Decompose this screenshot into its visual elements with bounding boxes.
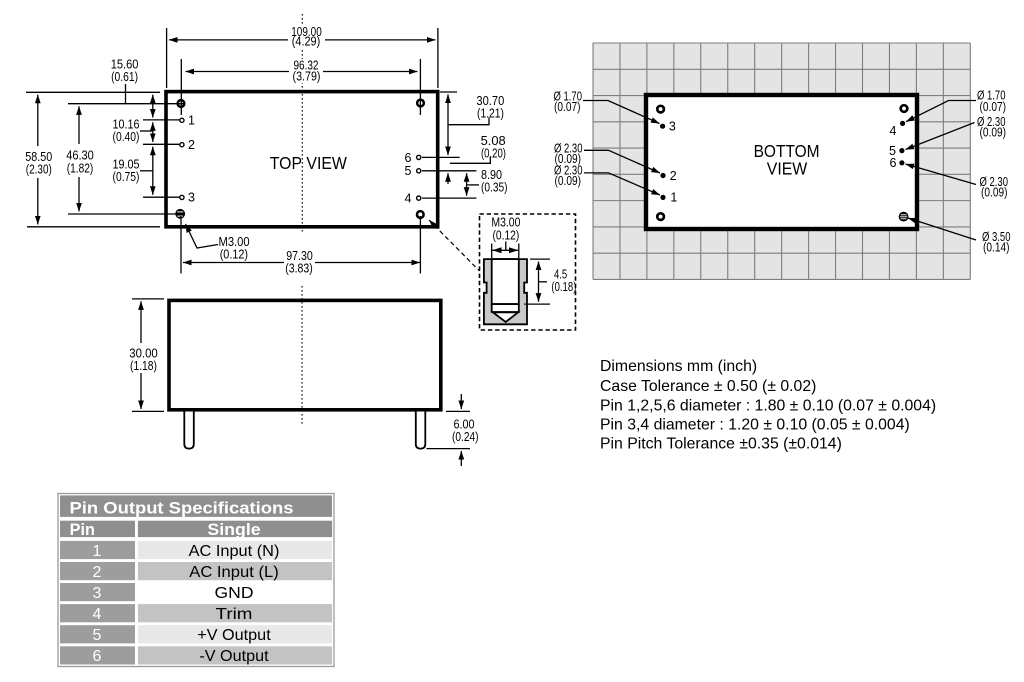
svg-text:Pin Pitch Tolerance ±0.35 (±0.: Pin Pitch Tolerance ±0.35 (±0.014) xyxy=(600,435,842,452)
svg-text:(0.14): (0.14) xyxy=(983,241,1010,255)
svg-text:5: 5 xyxy=(405,164,412,178)
svg-text:Pin 3,4 diameter : 1.20 ± 0.10: Pin 3,4 diameter : 1.20 ± 0.10 (0.05 ± 0… xyxy=(600,417,910,434)
svg-text:3: 3 xyxy=(669,120,676,134)
svg-text:1: 1 xyxy=(93,543,102,560)
svg-text:Case Tolerance ± 0.50 (± 0.02): Case Tolerance ± 0.50 (± 0.02) xyxy=(600,378,816,395)
svg-text:AC Input (L): AC Input (L) xyxy=(189,564,279,581)
svg-text:4: 4 xyxy=(890,124,897,138)
svg-text:Pin 1,2,5,6 diameter : 1.80 ±: Pin 1,2,5,6 diameter : 1.80 ± 0.10 (0.07… xyxy=(600,398,936,415)
svg-text:(0.35): (0.35) xyxy=(481,180,508,195)
svg-text:+V Output: +V Output xyxy=(197,627,271,644)
svg-text:(0.09): (0.09) xyxy=(555,174,582,188)
svg-text:Dimensions mm (inch): Dimensions mm (inch) xyxy=(600,358,757,375)
svg-text:3: 3 xyxy=(188,191,195,205)
svg-text:(3.83): (3.83) xyxy=(285,261,313,276)
svg-text:Pin Output Specifications: Pin Output Specifications xyxy=(70,500,294,518)
svg-text:(3.79): (3.79) xyxy=(293,68,321,83)
svg-text:VIEW: VIEW xyxy=(306,153,347,173)
svg-text:6: 6 xyxy=(890,156,897,170)
svg-text:2: 2 xyxy=(188,138,195,152)
svg-text:(0.75): (0.75) xyxy=(113,169,140,184)
svg-text:(0.40): (0.40) xyxy=(113,129,140,144)
svg-text:(0.09): (0.09) xyxy=(980,126,1007,140)
svg-text:(4.29): (4.29) xyxy=(292,34,321,49)
svg-text:-V Output: -V Output xyxy=(199,648,269,665)
svg-text:4: 4 xyxy=(405,191,412,205)
svg-text:1: 1 xyxy=(670,191,677,205)
svg-text:(0.18): (0.18) xyxy=(551,279,576,294)
svg-text:(1.21): (1.21) xyxy=(477,105,504,120)
svg-text:GND: GND xyxy=(215,585,254,602)
svg-text:(0.12): (0.12) xyxy=(220,247,248,262)
svg-text:3: 3 xyxy=(93,585,102,602)
svg-text:4: 4 xyxy=(93,606,102,623)
svg-text:(0.07): (0.07) xyxy=(554,100,581,114)
svg-text:6: 6 xyxy=(93,648,102,665)
svg-text:(0.24): (0.24) xyxy=(452,429,479,444)
svg-text:AC Input (N): AC Input (N) xyxy=(189,543,280,560)
svg-text:TOP: TOP xyxy=(270,153,302,173)
svg-text:(1.18): (1.18) xyxy=(130,358,157,373)
svg-text:Trim: Trim xyxy=(216,606,253,623)
svg-text:6: 6 xyxy=(405,151,412,165)
svg-text:2: 2 xyxy=(93,564,102,581)
svg-text:5: 5 xyxy=(93,627,102,644)
svg-text:2: 2 xyxy=(670,169,677,183)
svg-text:(0.12): (0.12) xyxy=(492,228,519,243)
svg-text:(0.07): (0.07) xyxy=(980,100,1007,114)
svg-text:(0.09): (0.09) xyxy=(981,186,1008,200)
svg-text:VIEW: VIEW xyxy=(767,158,808,178)
svg-text:(1.82): (1.82) xyxy=(67,161,94,176)
svg-text:(0.20): (0.20) xyxy=(481,146,506,161)
svg-text:(2.30): (2.30) xyxy=(26,162,52,177)
svg-text:1: 1 xyxy=(188,114,195,128)
svg-text:(0.61): (0.61) xyxy=(111,69,138,84)
svg-text:Pin: Pin xyxy=(70,521,95,539)
svg-text:Single: Single xyxy=(207,521,260,539)
